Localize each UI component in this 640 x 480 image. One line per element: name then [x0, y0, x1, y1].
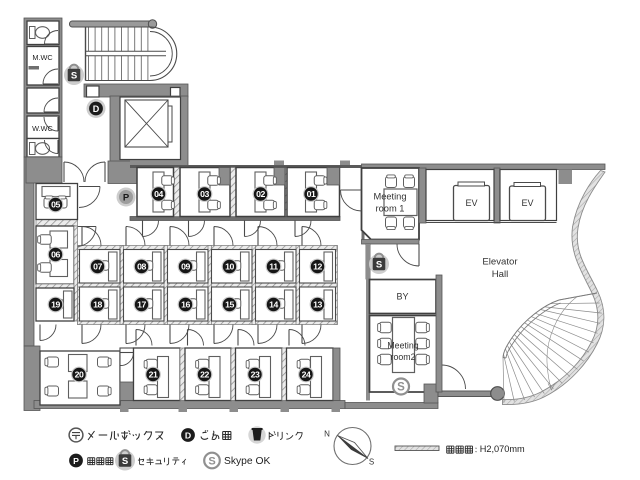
- svg-text:N: N: [324, 430, 330, 439]
- svg-text:H2,070mm: H2,070mm: [480, 444, 525, 454]
- svg-text:EV: EV: [521, 198, 533, 208]
- svg-text:room2: room2: [391, 352, 416, 362]
- svg-text:05: 05: [51, 200, 60, 210]
- svg-text:P: P: [123, 193, 130, 204]
- svg-text:Meeting: Meeting: [387, 341, 418, 351]
- svg-text:17: 17: [137, 300, 146, 310]
- svg-text:24: 24: [302, 370, 311, 380]
- svg-text:09: 09: [181, 262, 190, 272]
- svg-text:Elevator: Elevator: [482, 257, 518, 268]
- svg-text:23: 23: [251, 370, 260, 380]
- svg-text:D: D: [185, 430, 191, 440]
- svg-text:14: 14: [269, 300, 278, 310]
- svg-text:BY: BY: [396, 292, 408, 302]
- svg-text:08: 08: [137, 262, 146, 272]
- svg-text:S: S: [122, 456, 128, 467]
- svg-text:Meeting: Meeting: [373, 192, 406, 202]
- svg-text:S: S: [71, 71, 77, 82]
- svg-text:04: 04: [154, 189, 163, 199]
- svg-text:13: 13: [313, 300, 322, 310]
- svg-text:20: 20: [75, 370, 84, 380]
- svg-text:03: 03: [200, 189, 209, 199]
- svg-text:11: 11: [269, 262, 278, 272]
- svg-text:19: 19: [51, 300, 60, 310]
- svg-text:EV: EV: [465, 198, 477, 208]
- svg-text:15: 15: [225, 300, 234, 310]
- svg-text:07: 07: [93, 262, 102, 272]
- svg-text:21: 21: [149, 370, 158, 380]
- svg-text:D: D: [93, 104, 100, 114]
- svg-text:S: S: [208, 455, 215, 467]
- svg-text:Hall: Hall: [492, 269, 509, 280]
- svg-text:12: 12: [313, 262, 322, 272]
- svg-text:S: S: [397, 382, 405, 394]
- svg-text:18: 18: [93, 300, 102, 310]
- svg-text:01: 01: [307, 189, 316, 199]
- svg-text:S: S: [369, 458, 374, 467]
- svg-text:10: 10: [225, 262, 234, 272]
- svg-text:06: 06: [51, 250, 60, 260]
- svg-text:M.WC: M.WC: [32, 53, 52, 62]
- svg-text:W.WC: W.WC: [32, 124, 53, 133]
- svg-text:02: 02: [256, 189, 265, 199]
- svg-text:room 1: room 1: [376, 204, 405, 214]
- svg-text:16: 16: [181, 300, 190, 310]
- svg-text:22: 22: [200, 370, 209, 380]
- svg-text:S: S: [376, 260, 382, 271]
- svg-text:P: P: [73, 456, 79, 466]
- svg-text:Skype OK: Skype OK: [224, 456, 270, 467]
